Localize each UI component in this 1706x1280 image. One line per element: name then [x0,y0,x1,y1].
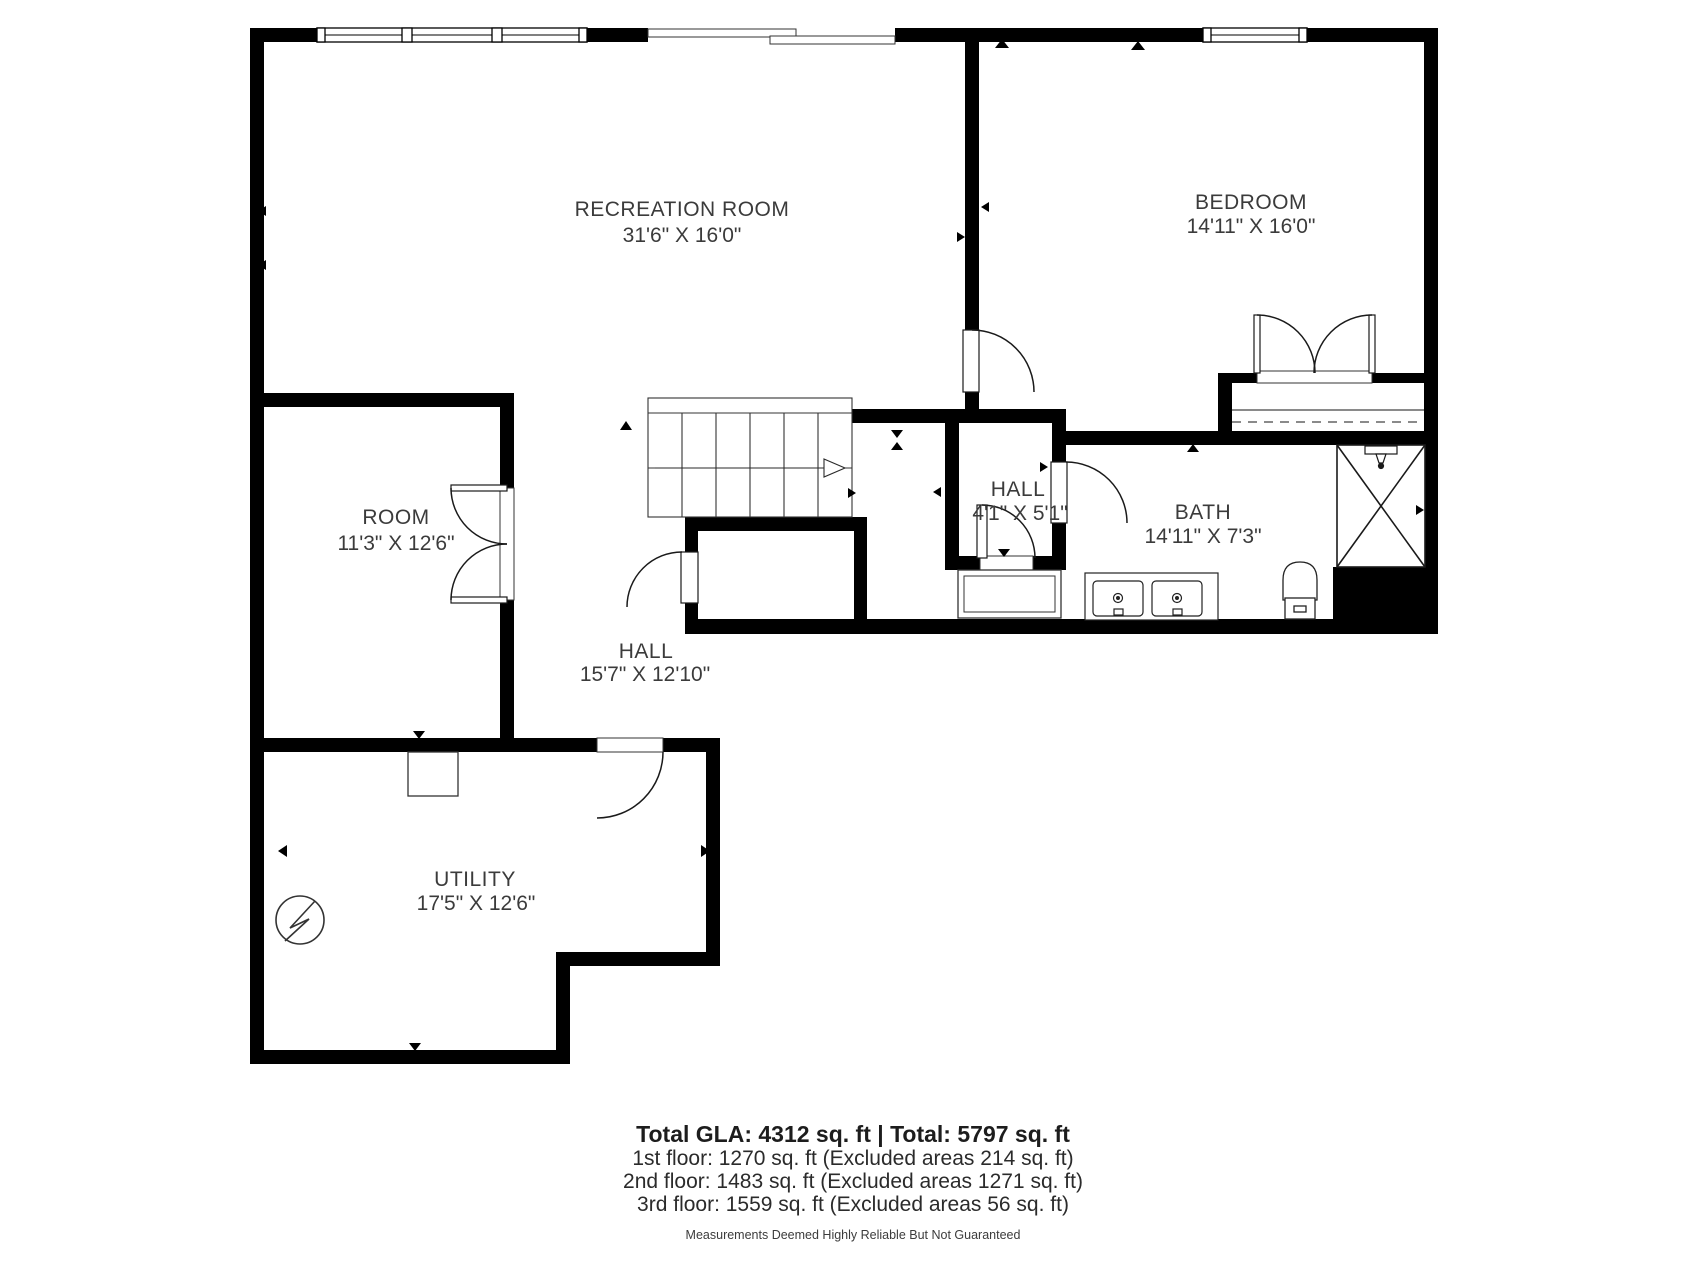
door-arc [972,330,1034,392]
svg-text:ROOM: ROOM [362,506,429,529]
window-post [1299,28,1307,42]
svg-text:HALL: HALL [619,640,674,663]
svg-text:RECREATION ROOM: RECREATION ROOM [575,198,790,221]
window-mullion [402,28,412,42]
svg-text:17'5" X 12'6": 17'5" X 12'6" [417,892,536,915]
door-arc [627,552,682,607]
room-label-bedroom: BEDROOM 14'11" X 16'0" [1187,191,1316,238]
floor-plan-page: RECREATION ROOM 31'6" X 16'0" BEDROOM 14… [0,0,1706,1280]
sliding-door-panel [770,36,895,44]
svg-text:14'11" X 7'3": 14'11" X 7'3" [1144,525,1261,548]
stairs [648,398,852,517]
door-arc [1314,315,1372,373]
window-mullion [492,28,502,42]
bath-corner-fill [1333,567,1425,620]
svg-text:4'1" X 5'1": 4'1" X 5'1" [972,502,1067,525]
floor-plan-svg: RECREATION ROOM 31'6" X 16'0" BEDROOM 14… [0,0,1706,1280]
floor-area-line: 3rd floor: 1559 sq. ft (Excluded areas 5… [0,1193,1706,1216]
room-label-bath: BATH 14'11" X 7'3" [1144,501,1261,548]
room-label-room: ROOM 11'3" X 12'6" [337,506,454,555]
electrical-symbol-icon [276,896,324,944]
area-summary: Total GLA: 4312 sq. ft | Total: 5797 sq.… [0,1121,1706,1242]
window-post [1203,28,1211,42]
svg-text:HALL: HALL [991,478,1046,501]
toilet [1283,562,1317,619]
svg-text:BEDROOM: BEDROOM [1195,191,1307,214]
room-label-recreation: RECREATION ROOM 31'6" X 16'0" [575,198,790,247]
shower [1337,445,1425,567]
svg-text:UTILITY: UTILITY [434,868,516,891]
total-gla: Total GLA: 4312 sq. ft | Total: 5797 sq.… [0,1121,1706,1147]
svg-text:14'11" X 16'0": 14'11" X 16'0" [1187,215,1316,238]
door-arc [451,488,507,544]
window-post [317,28,325,42]
room-label-hall: HALL 15'7" X 12'10" [580,640,710,686]
equipment-box [408,752,458,796]
door-arc [1066,462,1127,523]
double-vanity [1085,573,1218,620]
svg-text:15'7" X 12'10": 15'7" X 12'10" [580,663,710,686]
door-arc [597,752,663,818]
svg-text:31'6" X 16'0": 31'6" X 16'0" [623,224,742,247]
floor-area-line: 1st floor: 1270 sq. ft (Excluded areas 2… [0,1147,1706,1170]
floor-area-line: 2nd floor: 1483 sq. ft (Excluded areas 1… [0,1170,1706,1193]
door-arc [1257,315,1315,373]
closet-rod [1232,410,1424,422]
room-label-utility: UTILITY 17'5" X 12'6" [417,868,536,915]
svg-text:11'3" X 12'6": 11'3" X 12'6" [337,532,454,555]
door-arc [451,544,507,600]
svg-text:BATH: BATH [1175,501,1231,524]
window-post [579,28,587,42]
disclaimer: Measurements Deemed Highly Reliable But … [0,1228,1706,1242]
